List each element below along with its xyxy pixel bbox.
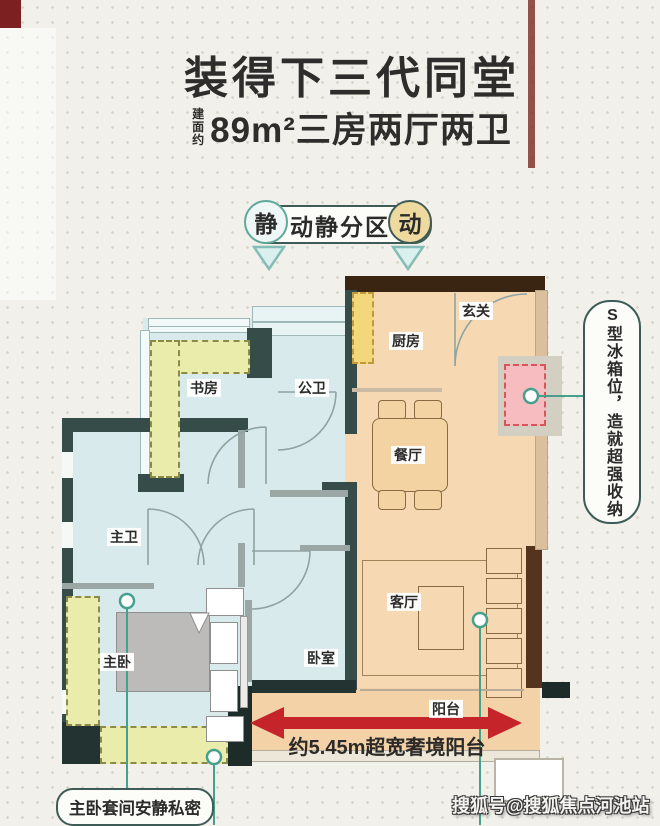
sofa-cushion [486,638,522,664]
dining-chair [414,400,442,420]
room-label-master-bedroom: 主卧 [100,653,134,671]
wall-divider-door-gap [345,434,357,484]
bed-cushion [210,622,238,664]
active-zone-pointer-icon [391,245,425,271]
fridge-callout-pill: S型冰箱位，造就超强收纳 [583,300,641,524]
study-left-window [140,330,150,476]
coffee-table [418,586,464,650]
dining-chair [378,490,406,510]
wall-bedroom-bottom [252,680,356,693]
room-label-balcony: 阳台 [429,700,463,718]
left-wall-window-gap [62,452,73,478]
wall-corridor-upper [238,430,245,488]
dining-chair [378,400,406,420]
sofa-cushion [486,548,522,574]
sofa-cushion [486,608,522,634]
wall-right-tan-upper [535,290,548,362]
wall-bottom-left-corner [62,722,100,764]
corner-red-block [0,0,21,28]
balcony-width-arrow [282,717,490,729]
room-label-master-bath: 主卫 [107,528,141,546]
wall-living-right-brown [526,546,542,688]
room-label-study: 书房 [187,379,221,397]
room-label-public-bath: 公卫 [295,379,329,397]
master-wardrobe-vertical [66,596,100,726]
fridge-position-highlight [504,364,546,426]
wall-public-bath-bottom [270,490,348,497]
balcony-arrow-right-icon [488,707,522,739]
quiet-zone-pointer-icon [252,245,286,271]
kitchen-counter [352,292,374,364]
quiet-zone-badge: 静 [244,200,288,244]
sofa-cushion [486,668,522,698]
nightstand [206,588,244,616]
sofa-cushion [486,578,522,604]
zoning-label: 动静分区 [290,208,390,242]
room-label-bedroom: 卧室 [304,649,338,667]
wall-master-bath-bottom [62,583,154,589]
floorplan-poster: { "title": { "main": "装得下三代同堂", "area_pr… [0,0,660,825]
study-cabinet-area-vertical [150,340,180,478]
room-label-living: 客厅 [387,593,421,611]
balcony-arrow-left-icon [250,707,284,739]
study-top-window [148,318,250,333]
area-line-label: 89m²三房两厅两卫 [210,102,512,153]
active-zone-badge: 动 [388,200,432,244]
room-label-entry: 玄关 [459,302,493,320]
watermark: 搜狐号@搜狐焦点河池站 [452,792,658,818]
nightstand [206,716,244,742]
wall-kitchen-bottom [352,388,442,392]
poster-title: 装得下三代同堂 [22,42,660,106]
master-suite-callout-pill: 主卧套间安静私密 [56,788,214,826]
bed-rail [240,616,248,708]
balcony-width-text: 约5.45m超宽奢境阳台 [289,731,486,760]
wall-balcony-right [542,682,570,698]
wall-study-block [247,328,272,378]
wall-top-brown [345,276,545,292]
room-label-kitchen: 厨房 [389,332,423,350]
wall-bedroom-top [300,545,350,551]
poster-subtitle: 建面约 89m²三房两厅两卫 [22,102,660,153]
area-prefix-label: 建面约 [192,108,206,148]
dining-chair [414,490,442,510]
wall-right-tan-mid [535,430,548,550]
bed-cushion [210,670,238,712]
wall-corridor-lower [238,543,245,587]
room-label-dining: 餐厅 [391,446,425,464]
left-wall-window-gap [62,522,73,548]
